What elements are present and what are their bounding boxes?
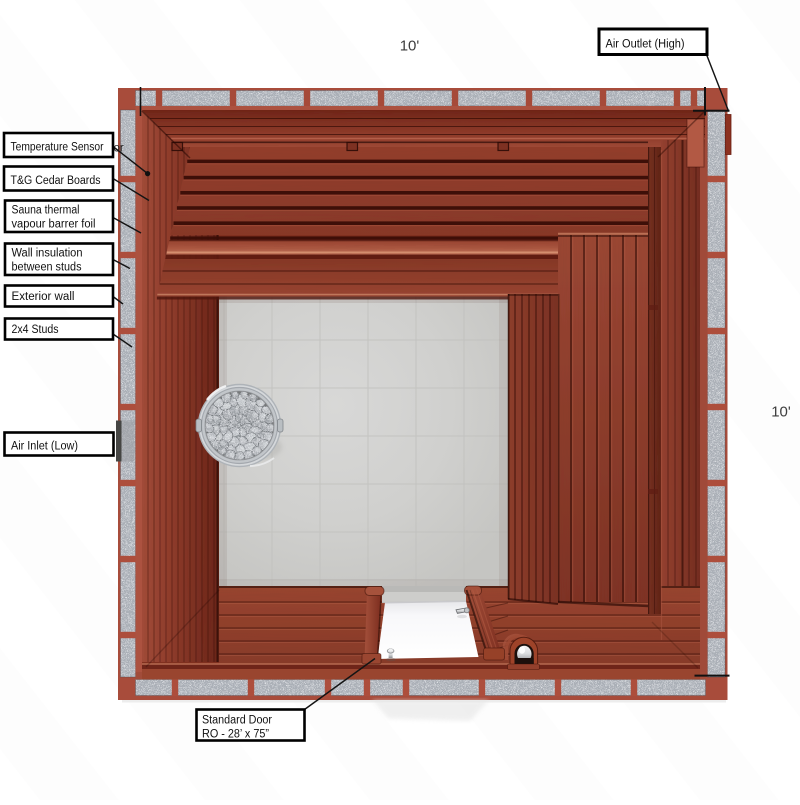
svg-text:10': 10' [400, 38, 420, 55]
svg-text:T&G Cedar Boards: T&G Cedar Boards [11, 175, 101, 187]
svg-text:10': 10' [771, 404, 791, 421]
svg-text:Air Outlet (High): Air Outlet (High) [606, 39, 685, 51]
svg-text:Standard Door: Standard Door [202, 715, 272, 727]
svg-text:RO - 28’ x 75”: RO - 28’ x 75” [202, 729, 269, 741]
svg-text:Exterior wall: Exterior wall [12, 291, 75, 303]
svg-text:Temperature Sensor: Temperature Sensor [11, 142, 104, 154]
svg-text:Wall insulation: Wall insulation [12, 248, 83, 260]
svg-text:Sauna thermal: Sauna thermal [12, 205, 80, 217]
svg-text:between studs: between studs [12, 262, 82, 274]
svg-text:2x4 Studs: 2x4 Studs [12, 324, 59, 336]
svg-text:vapour barrer foil: vapour barrer foil [12, 219, 96, 231]
svg-text:Air Inlet (Low): Air Inlet (Low) [11, 441, 78, 453]
